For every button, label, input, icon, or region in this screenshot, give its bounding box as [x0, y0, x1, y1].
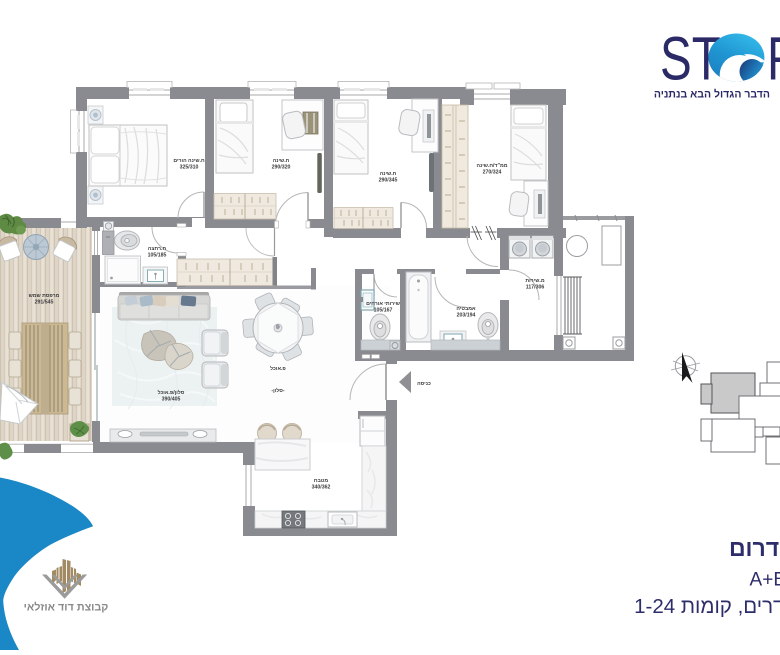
svg-text:5 חדרים, קומות 1-24: 5 חדרים, קומות 1-24: [634, 595, 780, 618]
svg-text:203/194: 203/194: [457, 313, 476, 319]
svg-text:R: R: [767, 24, 780, 93]
svg-text:117/306: 117/306: [526, 285, 545, 291]
svg-text:290/345: 290/345: [379, 178, 398, 184]
svg-text:325/310: 325/310: [180, 165, 199, 171]
svg-text:-סלון-: -סלון-: [271, 387, 284, 394]
svg-text:390/405: 390/405: [162, 397, 181, 403]
svg-text:מטבח: מטבח: [314, 478, 329, 484]
svg-text:105/185: 105/185: [148, 253, 167, 259]
svg-text:ח.שינה הורים: ח.שינה הורים: [173, 158, 205, 164]
svg-text:שירותי אורחים: שירותי אורחים: [366, 301, 400, 307]
svg-text:ח.שינה: ח.שינה: [380, 171, 397, 177]
svg-text:מ.שירות: מ.שירות: [525, 278, 544, 284]
svg-text:270/324: 270/324: [483, 170, 502, 176]
svg-text:אמבטיה: אמבטיה: [456, 306, 476, 312]
svg-text:291/545: 291/545: [35, 300, 54, 306]
svg-text:פ.אוכל: פ.אוכל: [270, 365, 286, 372]
svg-text:חזית דרום: חזית דרום: [729, 535, 780, 561]
svg-text:הדבר הגדול הבא בנתניה: הדבר הגדול הבא בנתניה: [654, 89, 770, 101]
svg-text:105/167: 105/167: [374, 308, 393, 314]
svg-text:ממ"ד/ח.שינה: ממ"ד/ח.שינה: [476, 163, 507, 169]
svg-text:סלון/פ.אוכל: סלון/פ.אוכל: [158, 389, 185, 396]
svg-text:290/320: 290/320: [272, 165, 291, 171]
svg-text:מרפסת שמש: מרפסת שמש: [29, 293, 60, 299]
svg-text:340/362: 340/362: [312, 485, 331, 491]
svg-text:קבוצת דוד אוזלאי: קבוצת דוד אוזלאי: [24, 601, 109, 614]
svg-text:ח.שינה: ח.שינה: [273, 158, 290, 164]
svg-text:A+B: A+B: [750, 570, 780, 591]
svg-text:כניסה: כניסה: [417, 381, 431, 387]
svg-text:ח.רחצה: ח.רחצה: [148, 246, 167, 252]
